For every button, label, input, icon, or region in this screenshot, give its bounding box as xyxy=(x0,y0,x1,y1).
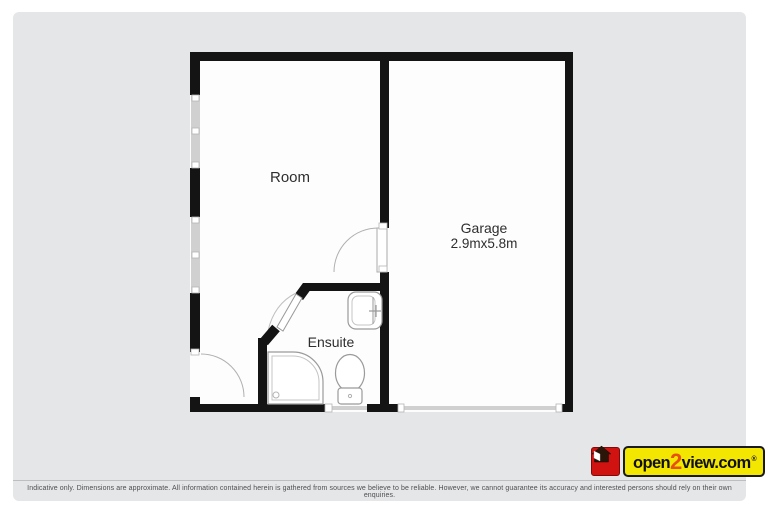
door-leaf xyxy=(377,228,387,272)
wall-left-seg2 xyxy=(190,168,200,217)
wall-bottom-left xyxy=(190,404,325,412)
garage-door-end-marker xyxy=(398,404,404,412)
logo-plate: open2view.com® xyxy=(623,446,765,477)
disclaimer-text: Indicative only. Dimensions are approxim… xyxy=(13,485,746,499)
floorplan-drawing: Room Garage 2.9mx5.8m Ensuite xyxy=(0,0,768,512)
door-frame-marker xyxy=(379,223,387,229)
window-pane-marker xyxy=(192,128,199,134)
garage-door-icon xyxy=(404,406,556,410)
wall-right xyxy=(565,52,573,412)
door-frame-marker xyxy=(191,349,199,355)
room-label: Room xyxy=(270,169,310,186)
wall-left-seg3 xyxy=(190,293,200,352)
wall-bottom-right xyxy=(562,404,573,412)
toilet-cistern xyxy=(338,388,362,404)
door-frame-marker xyxy=(379,266,387,272)
wall-left-seg4 xyxy=(190,397,200,412)
garage-dimensions: 2.9mx5.8m xyxy=(451,236,518,251)
wall-middle-lower xyxy=(380,272,389,412)
registered-mark: ® xyxy=(752,456,757,463)
window-pane-marker xyxy=(192,287,199,293)
logo-text-two: 2 xyxy=(670,451,682,473)
wall-ensuite-top xyxy=(303,283,389,291)
garage-label: Garage xyxy=(461,220,508,236)
footer-divider xyxy=(13,480,746,481)
wall-ensuite-stub-top xyxy=(299,286,307,297)
window-icon xyxy=(332,406,367,410)
window-end-marker xyxy=(325,404,332,412)
logo-text-view: view.com xyxy=(682,455,751,472)
window-pane-marker xyxy=(192,217,199,223)
house-icon xyxy=(591,447,620,476)
wall-left-seg1 xyxy=(190,52,200,95)
window-pane-marker xyxy=(192,162,199,168)
window-pane-marker xyxy=(192,95,199,101)
logo-text-open: open xyxy=(633,455,670,472)
toilet-icon xyxy=(336,355,365,392)
wall-middle-upper xyxy=(380,52,389,228)
garage-door-end-marker xyxy=(556,404,562,412)
window-pane-marker xyxy=(192,252,199,258)
logo-text: open2view.com® xyxy=(633,450,756,472)
wall-ensuite-left xyxy=(258,338,267,408)
open2view-logo: open2view.com® xyxy=(591,445,765,477)
ensuite-label: Ensuite xyxy=(308,334,355,350)
